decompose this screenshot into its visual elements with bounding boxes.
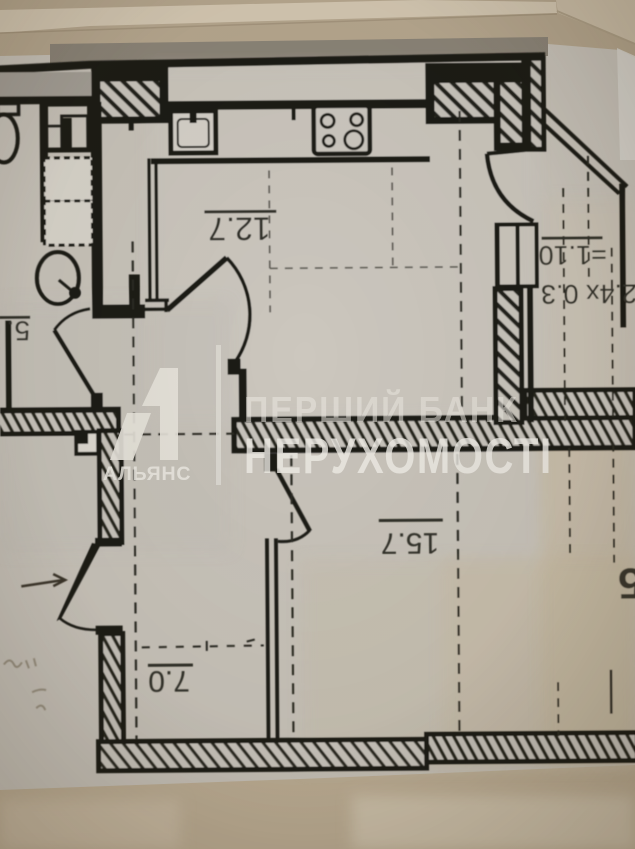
svg-text:5.: 5. bbox=[6, 315, 30, 346]
svg-text:7.0: 7.0 bbox=[148, 664, 190, 697]
svg-text:5: 5 bbox=[618, 558, 635, 607]
svg-text:ПЕРШИЙ БАНК: ПЕРШИЙ БАНК bbox=[244, 389, 519, 430]
svg-text:2.4x 0.3: 2.4x 0.3 bbox=[541, 279, 635, 310]
svg-text:12.7: 12.7 bbox=[208, 210, 271, 246]
svg-text:НЕРУХОМОСТІ: НЕРУХОМОСТІ bbox=[244, 428, 553, 484]
svg-text:=1.10: =1.10 bbox=[538, 240, 607, 271]
svg-text:АЛЬЯНС: АЛЬЯНС bbox=[103, 463, 191, 485]
svg-text:15.7: 15.7 bbox=[381, 526, 440, 559]
